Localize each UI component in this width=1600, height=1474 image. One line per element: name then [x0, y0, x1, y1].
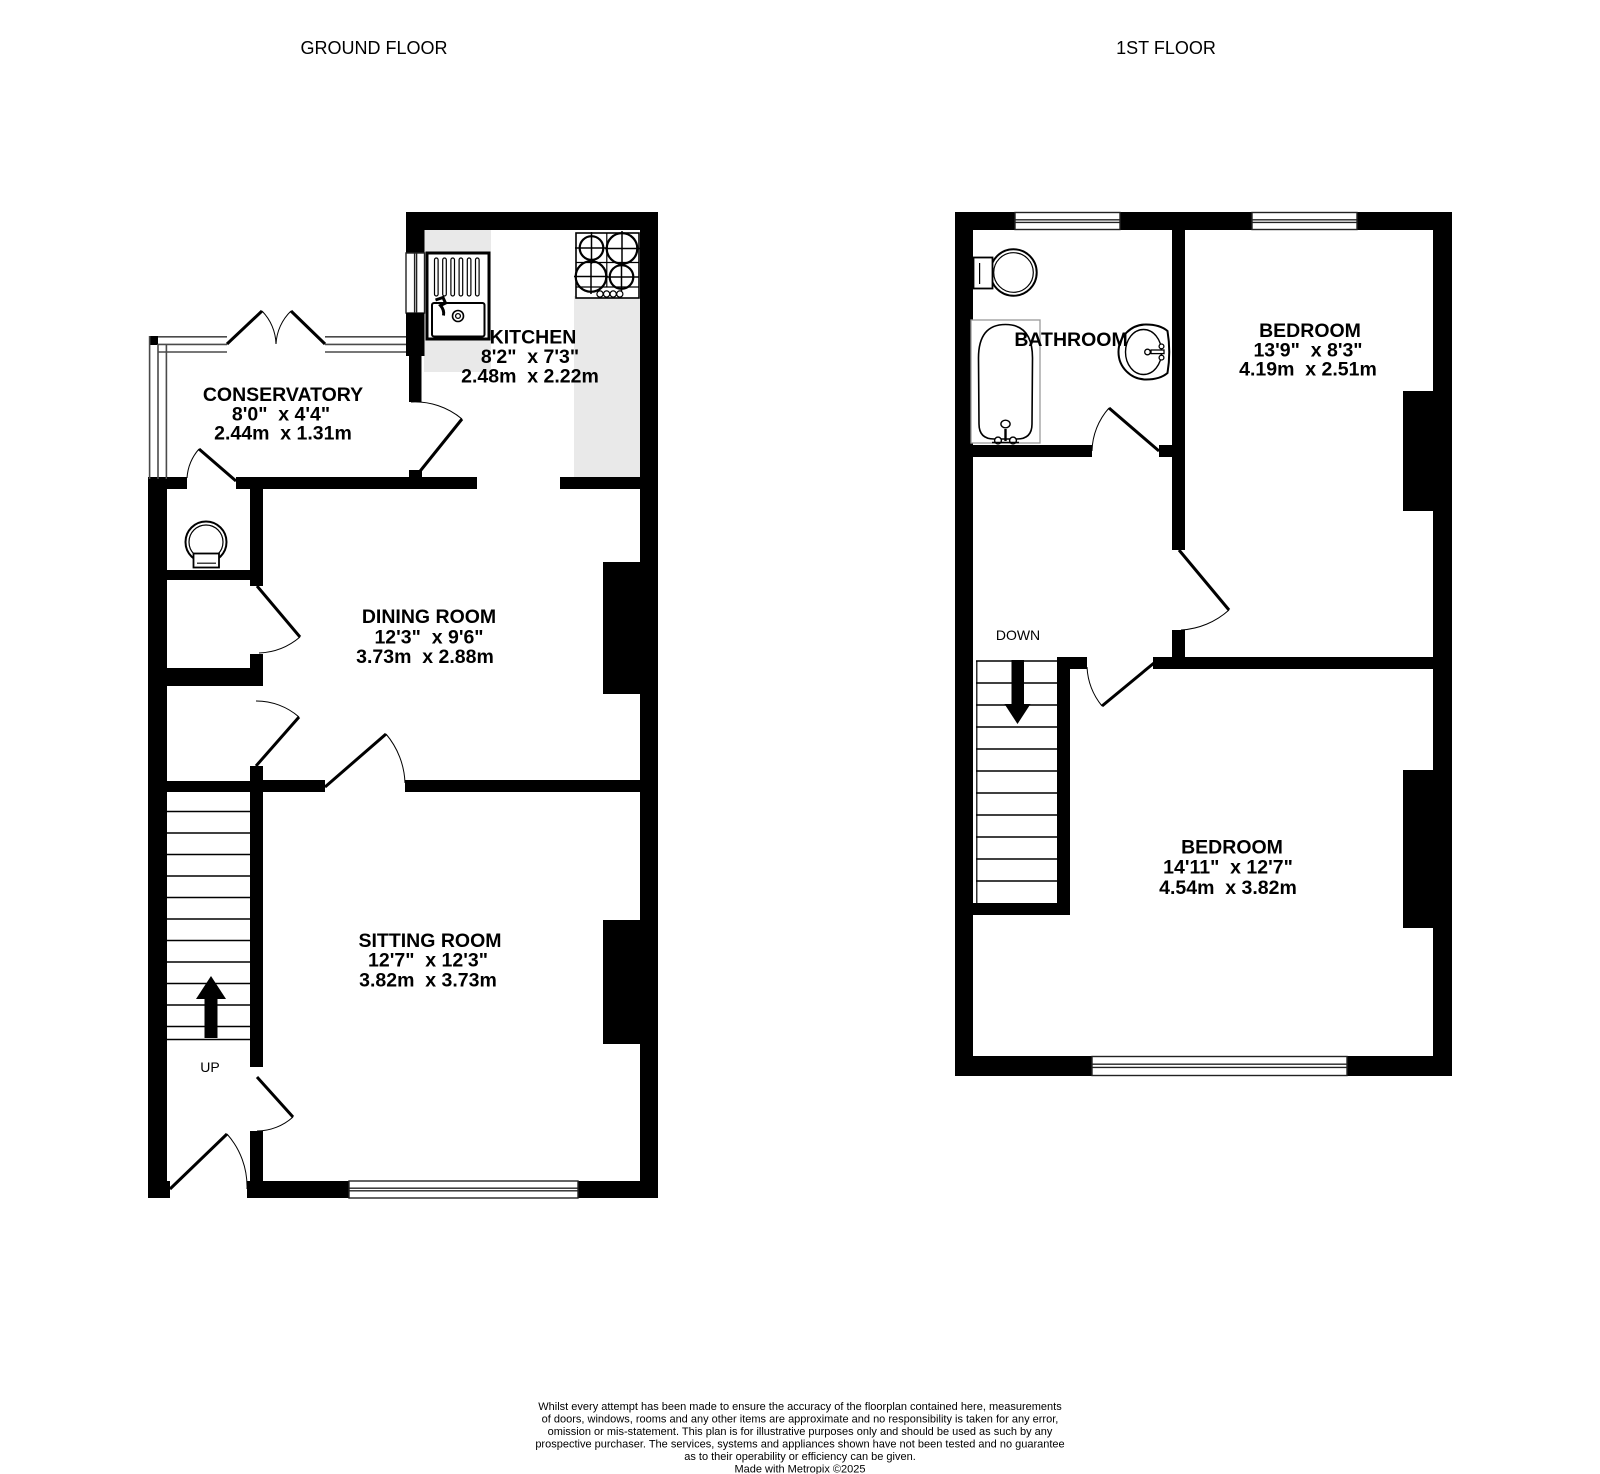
svg-text:GROUND FLOOR: GROUND FLOOR [300, 38, 447, 58]
svg-text:2.48m x 2.22m: 2.48m x 2.22m [461, 366, 599, 388]
svg-text:12'7" x 12'3": 12'7" x 12'3" [368, 950, 488, 972]
svg-text:3.82m x 3.73m: 3.82m x 3.73m [359, 970, 497, 992]
svg-text:4.19m x 2.51m: 4.19m x 2.51m [1239, 359, 1377, 381]
svg-text:14'11" x 12'7": 14'11" x 12'7" [1163, 857, 1293, 879]
svg-text:of doors, windows, rooms and a: of doors, windows, rooms and any other i… [542, 1414, 1059, 1426]
svg-text:omission or mis-statement. Thi: omission or mis-statement. This plan is … [548, 1426, 1053, 1438]
svg-text:BEDROOM: BEDROOM [1181, 837, 1283, 859]
svg-text:1ST FLOOR: 1ST FLOOR [1116, 38, 1216, 58]
svg-text:as to their operability or eff: as to their operability or efficiency ca… [684, 1451, 916, 1463]
svg-text:DINING ROOM: DINING ROOM [362, 606, 496, 628]
svg-text:3.73m x 2.88m: 3.73m x 2.88m [356, 646, 494, 668]
svg-text:4.54m x 3.82m: 4.54m x 3.82m [1159, 877, 1297, 899]
svg-text:BATHROOM: BATHROOM [1014, 329, 1127, 351]
svg-text:DOWN: DOWN [996, 627, 1040, 643]
svg-text:Made with Metropix ©2025: Made with Metropix ©2025 [734, 1464, 865, 1474]
svg-text:UP: UP [200, 1059, 219, 1075]
svg-text:prospective purchaser. The ser: prospective purchaser. The services, sys… [535, 1439, 1064, 1451]
svg-text:2.44m x 1.31m: 2.44m x 1.31m [214, 423, 352, 445]
svg-text:Whilst every attempt has been: Whilst every attempt has been made to en… [538, 1401, 1062, 1413]
